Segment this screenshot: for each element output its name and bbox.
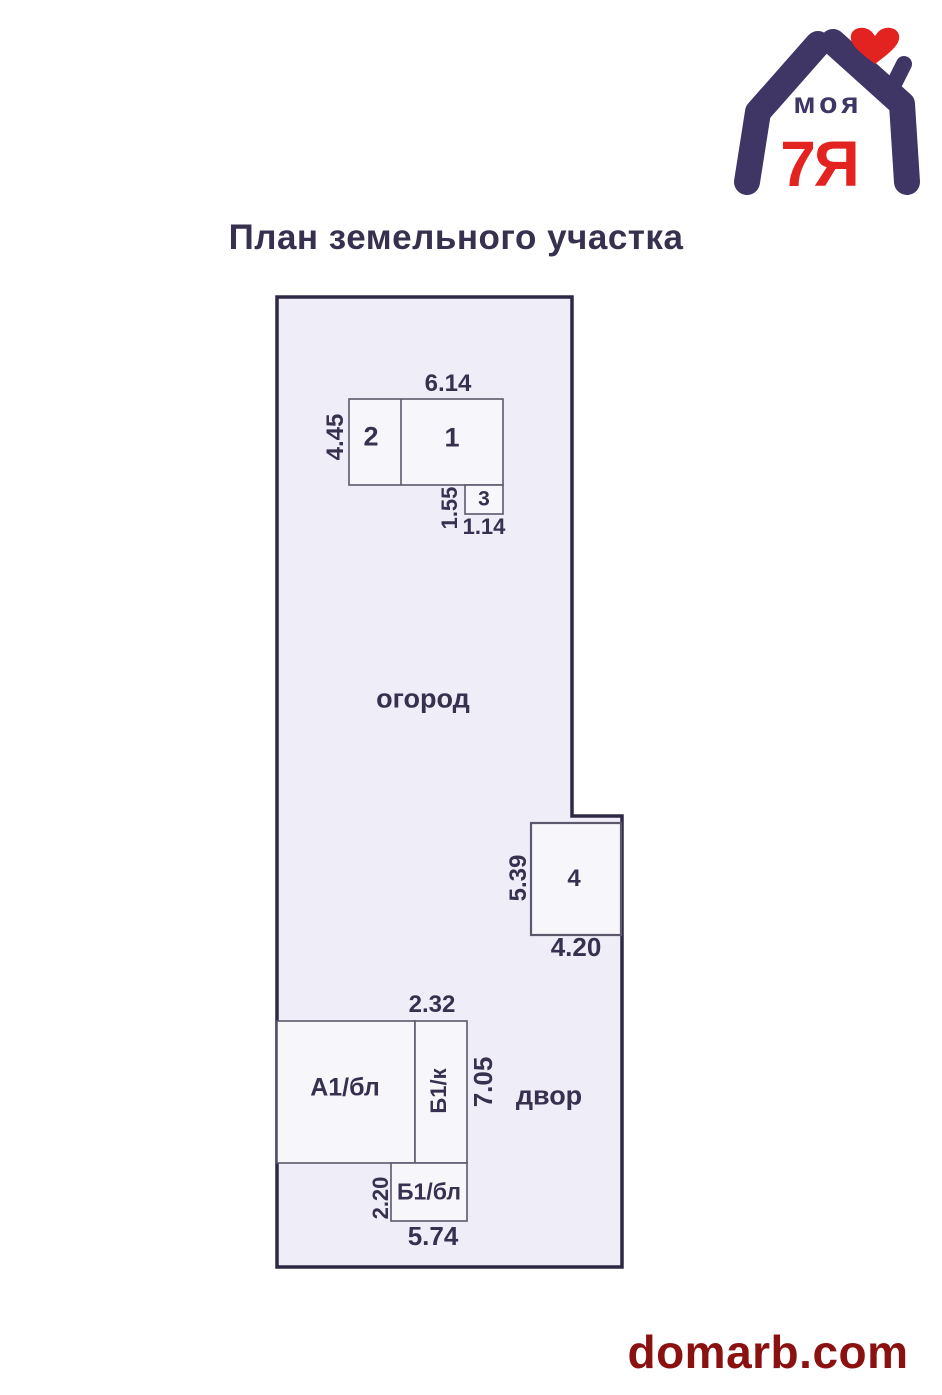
dimension-6-14: 6.14 — [425, 372, 472, 396]
dimension-1-14: 1.14 — [463, 516, 506, 538]
dimension-4-20: 4.20 — [551, 934, 602, 960]
building-4-label: 4 — [567, 867, 580, 891]
area-garden-label: огород — [376, 686, 470, 713]
building-3-label: 3 — [478, 489, 490, 510]
building-a1bl-label: А1/бл — [310, 1076, 380, 1101]
area-yard-label: двор — [516, 1083, 582, 1110]
dimension-2-20: 2.20 — [370, 1177, 392, 1220]
building-b1k-label: Б1/к — [428, 1068, 450, 1113]
page: моя 7Я План земельного участка 6.14 4.45… — [0, 0, 942, 1395]
dimension-1-55: 1.55 — [439, 487, 461, 530]
dimension-5-74: 5.74 — [408, 1223, 459, 1249]
dimension-7-05: 7.05 — [470, 1057, 496, 1108]
dimension-2-32: 2.32 — [409, 993, 456, 1017]
watermark-site-url: domarb.com — [627, 1325, 908, 1379]
dimension-5-39: 5.39 — [507, 855, 531, 902]
dimension-4-45: 4.45 — [324, 414, 348, 461]
land-plot-plan — [0, 0, 942, 1395]
building-b1bl-label: Б1/бл — [397, 1181, 461, 1204]
building-2-label: 2 — [363, 424, 378, 451]
building-1-label: 1 — [444, 425, 459, 452]
